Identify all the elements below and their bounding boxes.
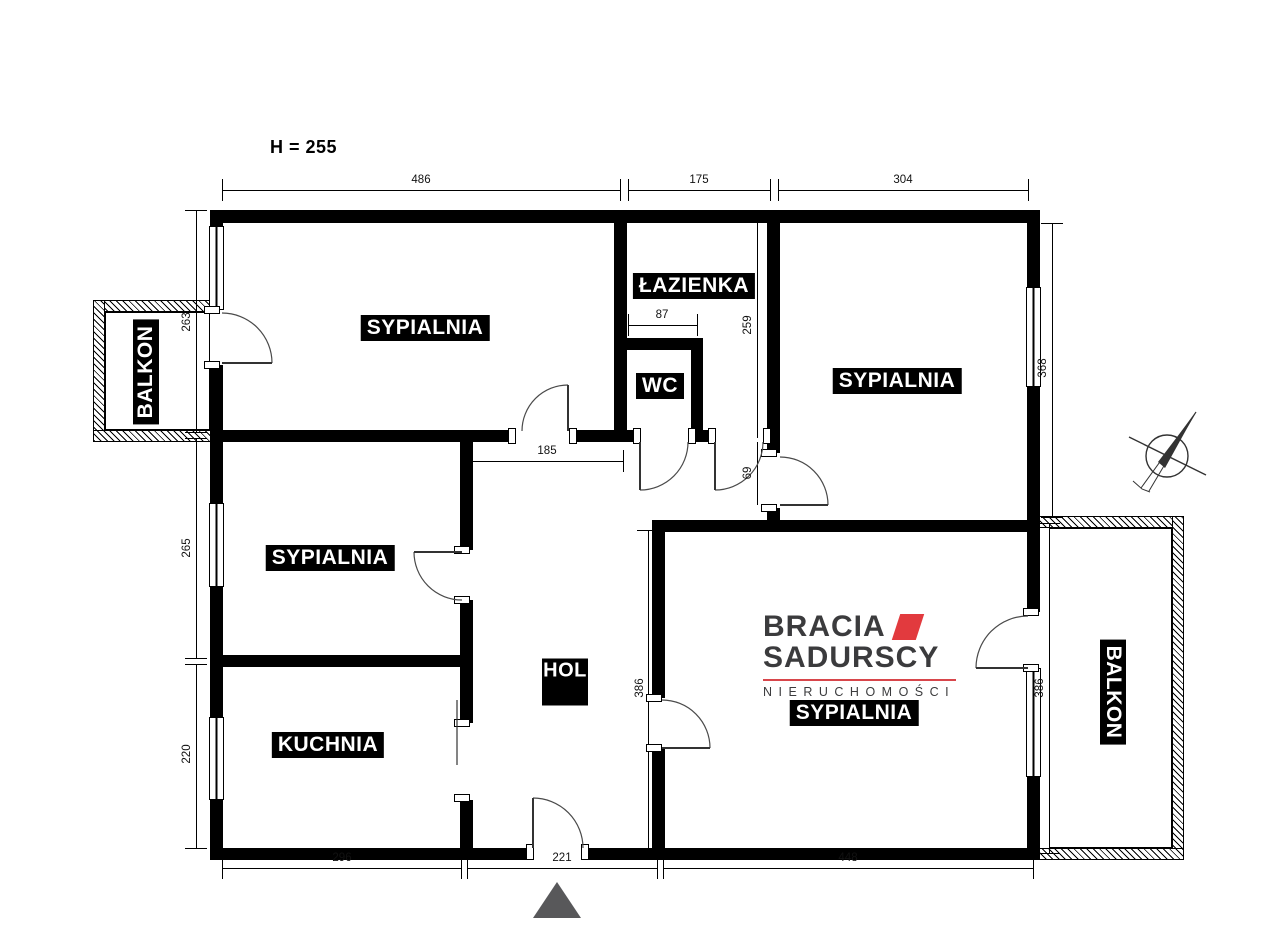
north-arrow-icon	[1129, 412, 1206, 492]
dimension-line	[185, 438, 207, 439]
dimension-line	[196, 664, 197, 848]
dim-balcony-right-height: 386	[1034, 678, 1046, 697]
dimension-line	[1052, 223, 1053, 517]
dimension-line	[467, 857, 468, 879]
wall-segment	[460, 800, 473, 848]
dimension-line	[1038, 523, 1060, 524]
door-jamb	[454, 546, 470, 554]
dim-bottom-1: 296	[332, 852, 351, 866]
logo-line1: BRACIA	[763, 612, 886, 642]
dimension-line	[185, 210, 207, 211]
room-label-wc: WC	[636, 373, 684, 399]
dimension-line	[623, 450, 624, 472]
dimension-line	[697, 314, 698, 336]
door-jamb	[454, 794, 470, 802]
dimension-line	[628, 179, 629, 201]
door-jamb	[454, 719, 470, 727]
wall-segment	[210, 210, 223, 226]
dimension-line	[770, 179, 771, 201]
wall-segment	[614, 223, 627, 442]
logo-line2: SADURSCY	[763, 642, 973, 673]
dim-hall-width: 185	[537, 445, 556, 459]
dim-right-bedroom-height: 368	[1037, 358, 1049, 377]
room-label-kitchen: KUCHNIA	[272, 732, 384, 758]
dim-bedroom-br-height: 386	[634, 678, 646, 697]
window	[209, 503, 224, 587]
dimension-line	[222, 179, 223, 201]
door-jamb	[569, 428, 577, 444]
dimension-line	[1049, 523, 1050, 853]
wall-segment	[652, 520, 665, 698]
door-jamb	[526, 844, 534, 860]
dimension-line	[222, 868, 461, 869]
door-jamb	[646, 694, 662, 702]
logo-accent-mark-icon	[891, 614, 923, 640]
door-jamb	[688, 428, 696, 444]
ceiling-height-label: H = 255	[270, 137, 337, 158]
dimension-line	[1028, 179, 1029, 201]
dim-top-1: 486	[411, 174, 430, 188]
door-jamb	[454, 596, 470, 604]
dimension-line	[471, 461, 623, 462]
dimension-line	[657, 857, 658, 879]
agency-logo: BRACIA SADURSCY NIERUCHOMOŚCI	[763, 612, 973, 699]
wall-segment	[460, 600, 473, 723]
dim-left-2: 265	[181, 538, 193, 557]
wall-segment	[210, 210, 1040, 223]
dimension-line	[1041, 223, 1063, 224]
dimension-line	[757, 442, 758, 505]
wall-segment	[573, 430, 637, 442]
dimension-line	[628, 190, 770, 191]
balcony-hatch	[1038, 848, 1184, 860]
window	[209, 226, 224, 310]
dim-wc-width: 87	[656, 309, 669, 323]
dimension-line	[185, 848, 207, 849]
room-label-balcony-left: BALKON	[133, 320, 159, 425]
dimension-line	[461, 857, 462, 879]
door-jamb	[581, 844, 589, 860]
dimension-line	[196, 438, 197, 658]
dimension-line	[222, 190, 620, 191]
entrance-marker	[533, 882, 581, 918]
dimension-line	[628, 325, 697, 326]
dim-bottom-3: 448	[838, 852, 857, 866]
dimension-line	[467, 868, 657, 869]
dimension-line	[648, 530, 649, 848]
door-jamb	[204, 306, 220, 314]
door-jamb	[633, 428, 641, 444]
door-jamb	[708, 428, 716, 444]
door-jamb	[1023, 608, 1039, 616]
wall-segment	[652, 748, 665, 848]
dim-top-2: 175	[689, 174, 708, 188]
room-label-bedroom-top-right: SYPIALNIA	[833, 368, 962, 394]
floor-plan: H = 255 SYPIALNIA ŁAZIENKA WC SYPIALNIA …	[0, 0, 1280, 945]
dimension-line	[778, 190, 1028, 191]
room-label-hall: HOL	[542, 659, 588, 706]
wall-segment	[585, 848, 1040, 860]
dimension-line	[663, 857, 664, 879]
dim-top-3: 304	[893, 174, 912, 188]
door-jamb	[761, 449, 777, 457]
dimension-line	[1038, 853, 1060, 854]
wall-segment	[1027, 210, 1040, 287]
wall-segment	[1027, 777, 1040, 860]
wall-segment	[210, 587, 223, 717]
dimension-line	[1033, 857, 1034, 879]
door-jamb	[204, 361, 220, 369]
balcony-hatch	[1172, 516, 1184, 860]
wall-segment	[210, 655, 473, 667]
wall-segment	[652, 520, 1040, 532]
dim-bottom-2: 221	[552, 852, 571, 866]
balcony-hatch	[93, 300, 210, 312]
dimension-line	[222, 857, 223, 879]
balcony-hatch	[93, 300, 105, 442]
room-label-bedroom-mid-left: SYPIALNIA	[266, 545, 395, 571]
dimension-line	[185, 664, 207, 665]
dimension-line	[620, 179, 621, 201]
window	[209, 717, 224, 800]
dimension-line	[628, 314, 629, 336]
room-label-bedroom-top-left: SYPIALNIA	[361, 315, 490, 341]
dim-bathroom-height: 259	[742, 315, 754, 334]
wall-segment	[210, 848, 530, 860]
logo-line3: NIERUCHOMOŚCI	[763, 685, 973, 699]
dimension-line	[185, 658, 207, 659]
dimension-line	[663, 868, 1033, 869]
door-jamb	[646, 744, 662, 752]
door-jamb	[761, 504, 777, 512]
dimension-line	[757, 223, 758, 438]
logo-rule	[763, 679, 956, 681]
wall-segment	[691, 338, 703, 442]
dimension-line	[196, 210, 197, 432]
dimension-line	[1041, 517, 1063, 518]
room-label-balcony-right: BALKON	[1100, 640, 1126, 745]
dim-passage: 69	[742, 467, 754, 480]
dim-left-1: 263	[181, 312, 193, 331]
wall-segment	[460, 430, 473, 550]
room-label-bathroom: ŁAZIENKA	[633, 273, 755, 299]
wall-segment	[614, 338, 703, 350]
room-label-bedroom-bottom-right: SYPIALNIA	[790, 700, 919, 726]
dimension-line	[185, 432, 207, 433]
wall-segment	[1027, 387, 1040, 612]
dim-left-3: 220	[181, 744, 193, 763]
dimension-line	[778, 179, 779, 201]
wall-segment	[767, 210, 780, 453]
door-jamb	[763, 428, 771, 444]
door-jamb	[508, 428, 516, 444]
door-jamb	[1023, 664, 1039, 672]
